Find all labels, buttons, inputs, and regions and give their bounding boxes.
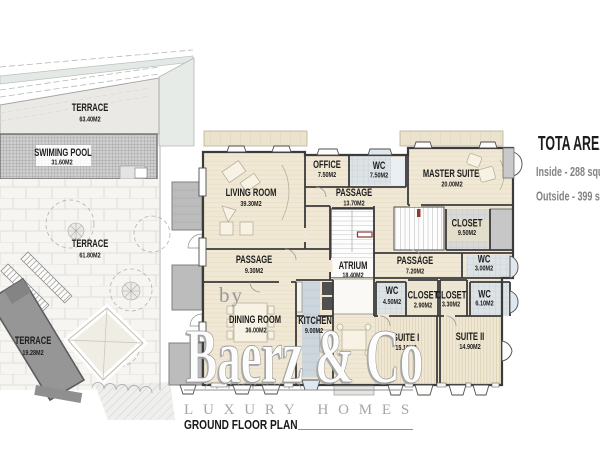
svg-text:PASSAGE: PASSAGE xyxy=(336,187,372,199)
svg-text:61.80M2: 61.80M2 xyxy=(79,252,101,260)
svg-text:CLOSET: CLOSET xyxy=(452,217,483,229)
svg-text:31.60M2: 31.60M2 xyxy=(51,159,73,167)
svg-text:Outside - 399 square: Outside - 399 square xyxy=(536,190,600,204)
svg-text:39.30M2: 39.30M2 xyxy=(240,200,262,208)
svg-text:4.50M2: 4.50M2 xyxy=(383,298,402,306)
svg-text:WC: WC xyxy=(386,285,399,297)
svg-text:63.40M2: 63.40M2 xyxy=(79,116,101,124)
svg-text:14.90M2: 14.90M2 xyxy=(459,343,481,351)
svg-text:TERRACE: TERRACE xyxy=(72,238,109,250)
svg-text:WC: WC xyxy=(478,253,491,265)
svg-text:SWIMING POOL: SWIMING POOL xyxy=(34,147,92,159)
svg-text:TERRACE: TERRACE xyxy=(72,102,109,114)
svg-text:WC: WC xyxy=(373,160,386,172)
svg-text:LIVING ROOM: LIVING ROOM xyxy=(226,187,277,199)
svg-text:20.00M2: 20.00M2 xyxy=(441,181,463,189)
svg-text:13.70M2: 13.70M2 xyxy=(343,200,365,208)
svg-text:SUITE II: SUITE II xyxy=(456,331,485,343)
svg-text:2.90M2: 2.90M2 xyxy=(414,302,433,310)
svg-text:LUXURY HOMES: LUXURY HOMES xyxy=(184,402,419,418)
svg-text:18.40M2: 18.40M2 xyxy=(342,272,364,280)
svg-text:3.30M2: 3.30M2 xyxy=(442,301,461,309)
svg-text:19.28M2: 19.28M2 xyxy=(22,349,44,357)
svg-text:PASSAGE: PASSAGE xyxy=(236,254,272,266)
svg-text:7.20M2: 7.20M2 xyxy=(406,268,425,276)
svg-text:6.10M2: 6.10M2 xyxy=(475,300,494,308)
svg-text:7.50M2: 7.50M2 xyxy=(318,171,337,179)
svg-text:TOTA AREA: TOTA AREA xyxy=(538,132,600,155)
svg-text:9.50M2: 9.50M2 xyxy=(458,229,477,237)
svg-text:TERRACE: TERRACE xyxy=(15,335,52,347)
svg-text:WC: WC xyxy=(478,288,491,300)
svg-text:Baerz & Co: Baerz & Co xyxy=(186,313,423,399)
svg-text:CLOSET: CLOSET xyxy=(436,289,467,301)
svg-text:PASSAGE: PASSAGE xyxy=(397,255,433,267)
svg-text:by: by xyxy=(219,283,244,307)
svg-text:OFFICE: OFFICE xyxy=(313,159,341,171)
svg-text:3.00M2: 3.00M2 xyxy=(475,265,494,273)
svg-text:CLOSET: CLOSET xyxy=(408,289,439,301)
svg-text:ATRIUM: ATRIUM xyxy=(339,260,368,272)
svg-text:7.50M2: 7.50M2 xyxy=(370,172,389,180)
svg-text:9.30M2: 9.30M2 xyxy=(245,267,264,275)
svg-text:MASTER SUITE: MASTER SUITE xyxy=(423,168,479,180)
svg-text:Inside - 288 square: Inside - 288 square xyxy=(536,166,600,180)
svg-text:GROUND FLOOR PLAN: GROUND FLOOR PLAN xyxy=(184,418,298,432)
